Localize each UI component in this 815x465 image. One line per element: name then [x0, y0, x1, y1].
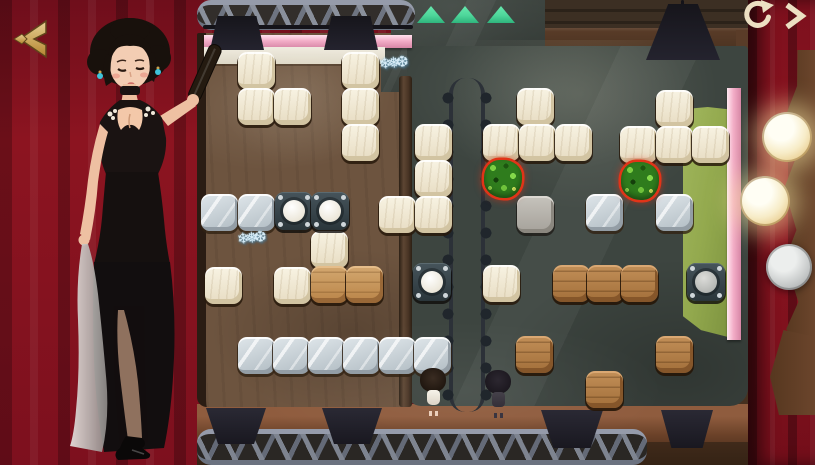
torso: [94, 172, 170, 264]
char-girl-tile: [420, 366, 447, 410]
white-tile[interactable]: [379, 196, 416, 233]
socket-tile: [311, 192, 349, 230]
glass-tile[interactable]: [586, 194, 623, 231]
hostess-character: [48, 10, 223, 465]
white-tile[interactable]: [311, 231, 348, 268]
sheer-overlay: [114, 306, 148, 444]
socket-tile: [413, 263, 451, 301]
back-button[interactable]: [8, 16, 52, 64]
white-tile[interactable]: [620, 126, 657, 163]
marker-tile: [417, 6, 445, 23]
restart-circular-arrow-icon: [741, 0, 775, 32]
white-tile[interactable]: [342, 52, 379, 89]
face: [110, 43, 150, 89]
glass-tile[interactable]: [273, 337, 310, 374]
socket-gray-tile: [687, 263, 725, 301]
glass-tile[interactable]: [238, 194, 275, 231]
white-tile[interactable]: [519, 124, 556, 161]
wood-tile[interactable]: [656, 336, 693, 373]
white-tile[interactable]: [555, 124, 592, 161]
game-screen: ❄❅❆❄❅❆: [0, 0, 815, 465]
wood-light-tile[interactable]: [311, 266, 348, 303]
white-tile[interactable]: [415, 196, 452, 233]
socket-tile: [275, 192, 313, 230]
white-tile[interactable]: [656, 126, 693, 163]
white-tile[interactable]: [656, 90, 693, 127]
restart-button[interactable]: [740, 0, 776, 32]
white-tile[interactable]: [342, 124, 379, 161]
wood-tile[interactable]: [587, 265, 624, 302]
white-tile[interactable]: [274, 267, 311, 304]
marker-tile: [451, 6, 479, 23]
next-button[interactable]: [782, 2, 808, 32]
char-shadow-tile: [485, 368, 512, 410]
earring: [97, 73, 103, 79]
marker-tile: [487, 6, 515, 23]
wood-tile[interactable]: [516, 336, 553, 373]
wood-tile[interactable]: [586, 371, 623, 408]
wood-tile[interactable]: [553, 265, 590, 302]
white-tile[interactable]: [415, 160, 452, 197]
glass-tile[interactable]: [379, 337, 416, 374]
stone-tile[interactable]: [517, 196, 554, 233]
glass-tile[interactable]: [308, 337, 345, 374]
ice-tile: ❄❅❆: [236, 227, 280, 267]
white-tile[interactable]: [483, 265, 520, 302]
bush-tile[interactable]: [621, 162, 659, 200]
earring: [155, 69, 161, 75]
glass-tile[interactable]: [656, 194, 693, 231]
white-tile[interactable]: [238, 52, 275, 89]
fan: [187, 43, 223, 103]
ice-tile: ❄❅❆: [378, 52, 422, 92]
bush-tile[interactable]: [484, 160, 522, 198]
glass-tile[interactable]: [238, 337, 275, 374]
white-tile[interactable]: [517, 88, 554, 125]
white-tile[interactable]: [274, 88, 311, 125]
white-tile[interactable]: [238, 88, 275, 125]
wood-light-tile[interactable]: [346, 266, 383, 303]
white-tile[interactable]: [415, 124, 452, 161]
white-tile[interactable]: [342, 88, 379, 125]
white-tile[interactable]: [483, 124, 520, 161]
next-chevron-icon: [783, 2, 807, 30]
glass-tile[interactable]: [343, 337, 380, 374]
gold-back-chevrons-icon: [10, 17, 50, 61]
white-tile[interactable]: [692, 126, 729, 163]
wood-tile[interactable]: [621, 265, 658, 302]
